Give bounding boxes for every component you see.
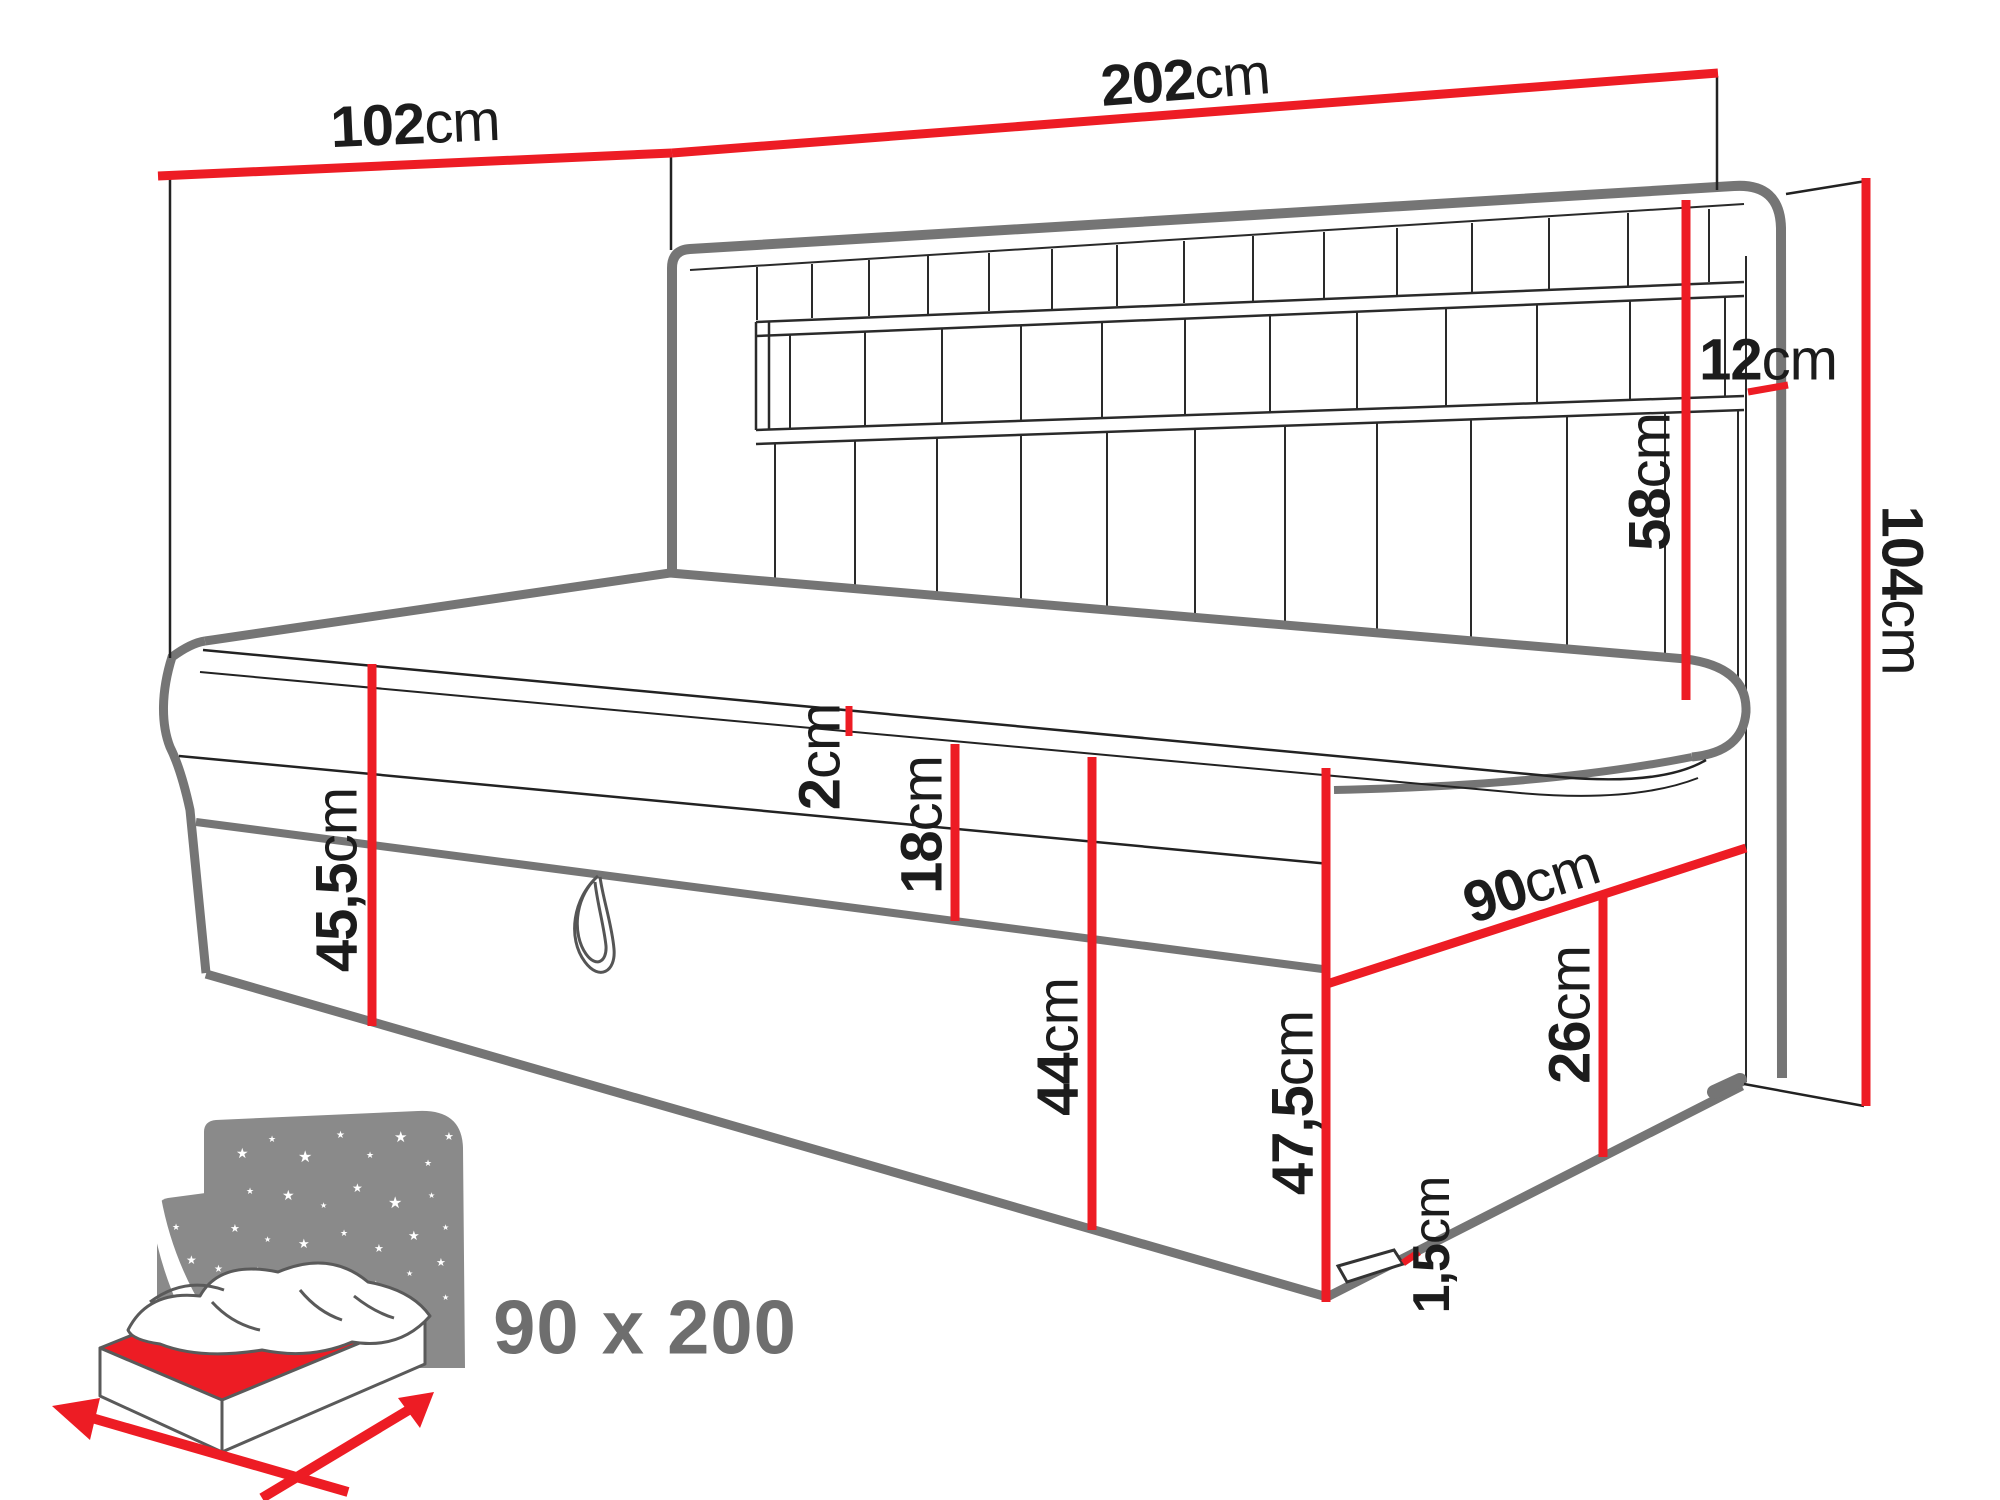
svg-text:★: ★ (298, 1149, 312, 1166)
bed-line-art: ★★ ★★ ★★ ★★ ★★ ★★ ★★ ★★ ★★ ★★ ★★ ★★ ★★ ★… (0, 0, 2000, 1500)
svg-text:★: ★ (336, 1130, 345, 1141)
svg-text:★: ★ (394, 1129, 407, 1146)
svg-text:★: ★ (444, 1131, 454, 1143)
bed-dimension-diagram: ★★ ★★ ★★ ★★ ★★ ★★ ★★ ★★ ★★ ★★ ★★ ★★ ★★ ★… (0, 0, 2000, 1500)
bed-size-icon: ★★ ★★ ★★ ★★ ★★ ★★ ★★ ★★ ★★ ★★ ★★ ★★ ★★ ★… (52, 1111, 465, 1498)
svg-text:★: ★ (352, 1181, 363, 1195)
svg-text:★: ★ (214, 1264, 223, 1275)
icon-size-label: 90 x 200 (493, 1285, 797, 1372)
svg-text:★: ★ (236, 1145, 249, 1161)
dim-label-202: 202cm (1098, 40, 1272, 120)
svg-text:★: ★ (230, 1223, 240, 1235)
dim-label-44: 44cm (1025, 978, 1092, 1116)
svg-text:★: ★ (436, 1257, 446, 1269)
dim-label-12: 12cm (1699, 327, 1837, 394)
dim-label-104: 104cm (1869, 505, 1936, 674)
dim-label-58: 58cm (1617, 413, 1684, 551)
svg-text:★: ★ (442, 1223, 449, 1232)
svg-text:★: ★ (406, 1269, 413, 1278)
svg-text:★: ★ (424, 1158, 432, 1168)
svg-text:★: ★ (442, 1293, 449, 1302)
svg-text:★: ★ (374, 1243, 384, 1255)
dim-label-18: 18cm (889, 756, 956, 894)
svg-text:★: ★ (366, 1150, 374, 1160)
svg-text:★: ★ (320, 1201, 327, 1210)
headboard-shelf (756, 282, 1744, 430)
dim-label-45-5: 45,5cm (304, 788, 371, 972)
svg-text:★: ★ (408, 1228, 420, 1243)
svg-text:★: ★ (428, 1191, 435, 1200)
svg-text:★: ★ (282, 1187, 295, 1203)
dim-label-2: 2cm (787, 704, 854, 811)
dim-label-47-5: 47,5cm (1260, 1011, 1327, 1195)
svg-text:★: ★ (298, 1236, 310, 1251)
dim-label-1-5: 1,5cm (1402, 1177, 1462, 1314)
svg-text:★: ★ (186, 1253, 197, 1267)
svg-text:★: ★ (388, 1195, 402, 1212)
headboard-lower-band (756, 396, 1744, 444)
svg-text:★: ★ (172, 1222, 180, 1232)
svg-text:★: ★ (340, 1228, 348, 1238)
dim-label-26: 26cm (1537, 946, 1604, 1084)
svg-text:★: ★ (264, 1235, 271, 1244)
svg-text:★: ★ (268, 1134, 276, 1144)
svg-text:★: ★ (246, 1186, 254, 1196)
dim-label-102: 102cm (329, 87, 501, 161)
